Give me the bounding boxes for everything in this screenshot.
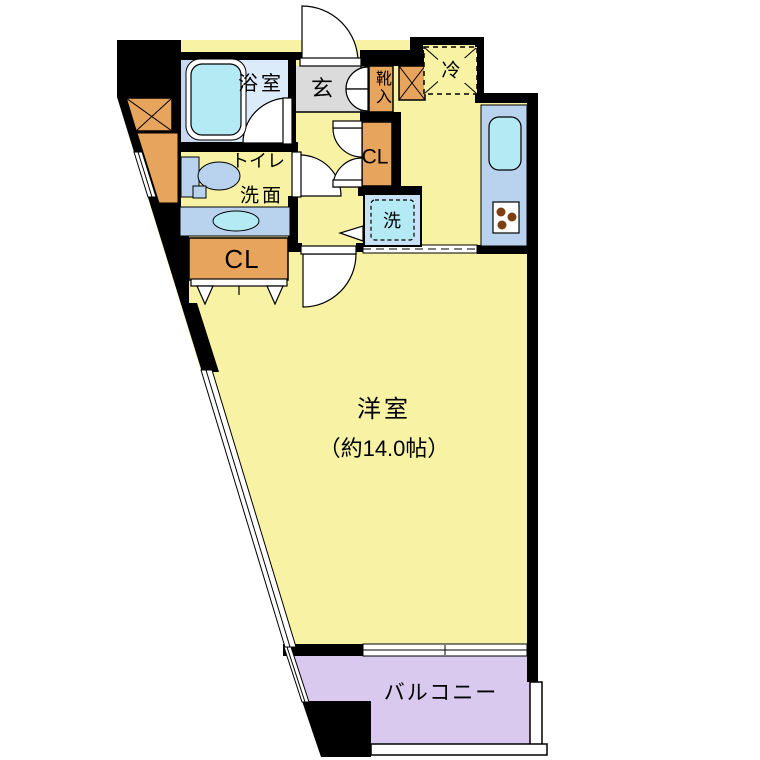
toilet-flush-box: [193, 186, 206, 198]
label-bathroom: 浴室: [238, 74, 284, 94]
label-main-room-size: （約14.0帖）: [319, 438, 450, 460]
floor-plan-drawing: [0, 0, 760, 760]
label-entrance: 玄: [311, 78, 333, 100]
floor-plan: 浴室 玄 靴入 冷 トイレ 洗面 CL CL 洗 洋室 （約14.0帖） バルコ…: [0, 0, 760, 760]
entry-door-swing: [302, 6, 358, 62]
label-closet-hall: CL: [362, 147, 389, 168]
closet-hall-door-panel: [333, 180, 362, 187]
washroom-door-panel: [292, 152, 301, 197]
wall-segment: [117, 40, 181, 98]
wall-segment-balcony-corner: [302, 701, 371, 757]
label-washer: 洗: [383, 212, 401, 230]
stove-burner: [498, 221, 507, 230]
label-toilet: トイレ: [231, 152, 285, 170]
wall-segment: [527, 97, 538, 682]
balcony-railing-right: [530, 682, 542, 746]
bathroom-door-panel: [283, 98, 292, 144]
label-vanity: 洗面: [240, 187, 284, 206]
closet-hall-door-panel: [333, 121, 362, 128]
stove-burner: [497, 208, 506, 217]
label-closet-room: CL: [224, 246, 259, 272]
bathtub: [191, 64, 241, 135]
label-refrigerator: 冷: [441, 62, 460, 81]
label-main-room: 洋室: [357, 398, 411, 422]
closet-room-door-track: [191, 279, 287, 286]
vanity-sink: [213, 211, 259, 231]
entry-door-panel: [300, 58, 361, 66]
label-balcony: バルコニー: [384, 683, 499, 704]
wall-segment: [392, 112, 401, 196]
label-shoe-cabinet: 靴入: [373, 70, 389, 106]
balcony-railing-bottom: [371, 744, 547, 755]
main-room-door-panel: [301, 246, 356, 254]
kitchen-sink: [489, 117, 521, 170]
stove-burner: [508, 213, 517, 222]
